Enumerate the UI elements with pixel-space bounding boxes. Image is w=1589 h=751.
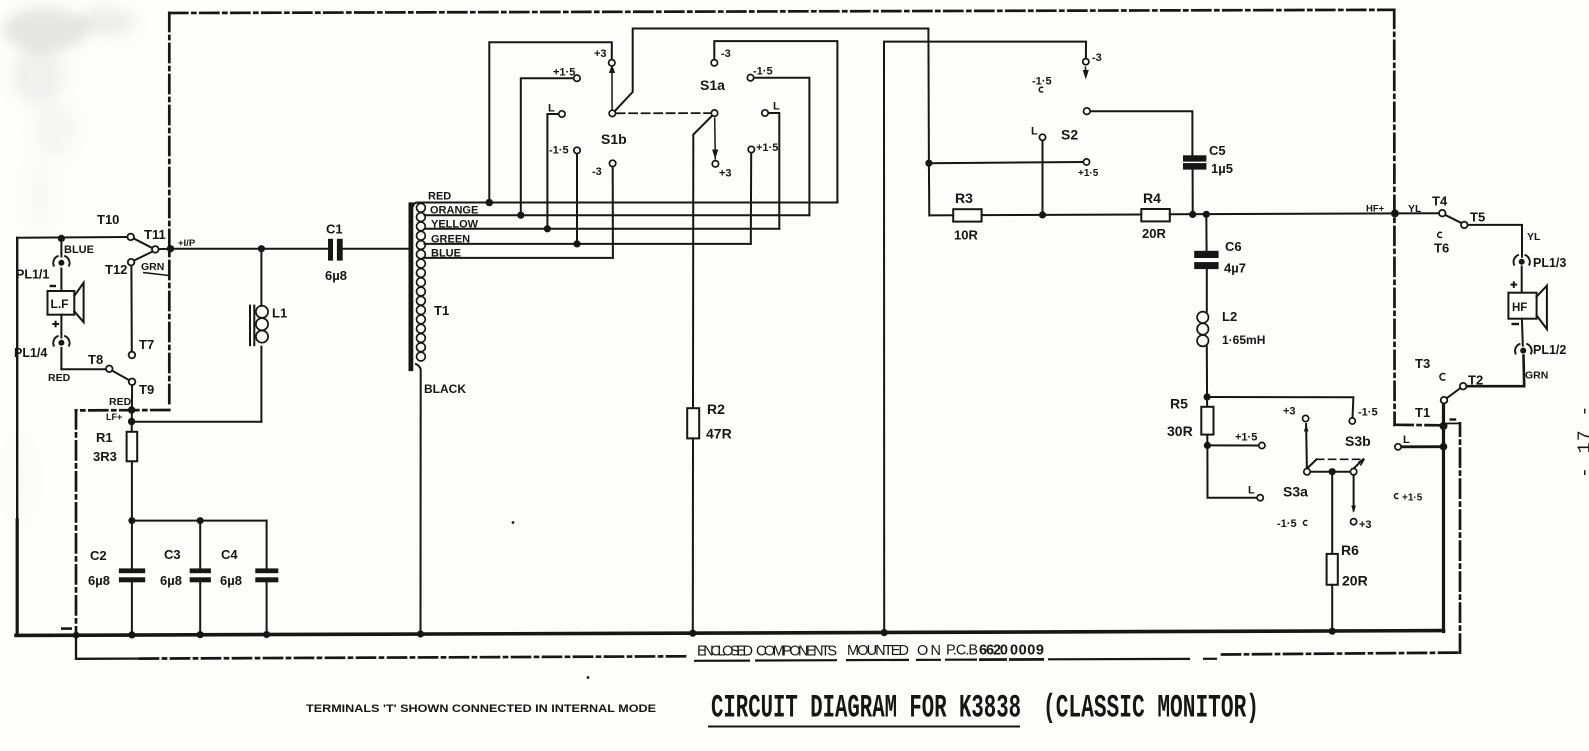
svg-text:+3: +3	[719, 168, 732, 180]
svg-text:30R: 30R	[1167, 423, 1193, 439]
svg-text:T7: T7	[139, 337, 154, 352]
svg-text:3R3: 3R3	[93, 449, 117, 464]
svg-text:-3: -3	[592, 166, 602, 178]
svg-text:T5: T5	[1470, 210, 1485, 225]
svg-text:YL: YL	[1527, 231, 1541, 243]
svg-text:YL: YL	[1408, 203, 1422, 215]
svg-text:47R: 47R	[706, 426, 732, 442]
svg-text:6µ8: 6µ8	[325, 268, 347, 283]
svg-text:+3: +3	[1283, 406, 1296, 418]
svg-text:HF: HF	[1512, 302, 1527, 314]
svg-text:COMPONENTS: COMPONENTS	[756, 643, 837, 659]
svg-text:C5: C5	[1209, 143, 1226, 158]
svg-text:T1: T1	[1415, 405, 1430, 420]
svg-text:GRN: GRN	[141, 261, 164, 273]
svg-text:6620: 6620	[979, 643, 1008, 659]
svg-text:T9: T9	[139, 382, 154, 397]
svg-text:BLUE: BLUE	[64, 244, 94, 256]
svg-text:S3b: S3b	[1345, 433, 1371, 449]
svg-text:S2: S2	[1061, 127, 1078, 143]
svg-text:L: L	[548, 103, 555, 115]
svg-text:HF+: HF+	[1366, 204, 1385, 215]
svg-text:P.C.B: P.C.B	[946, 643, 978, 659]
svg-text:T11: T11	[144, 227, 166, 242]
svg-text:PL1/1: PL1/1	[16, 268, 49, 282]
svg-text:RED: RED	[48, 372, 71, 384]
svg-text:T2: T2	[1468, 373, 1483, 388]
svg-text:C6: C6	[1225, 239, 1242, 254]
svg-text:R5: R5	[1170, 396, 1188, 412]
svg-text:6µ8: 6µ8	[220, 573, 242, 588]
svg-text:MOUNTED: MOUNTED	[847, 643, 909, 659]
svg-text:(CLASSIC MONITOR): (CLASSIC MONITOR)	[1043, 690, 1259, 727]
svg-text:+1·5: +1·5	[756, 142, 778, 154]
svg-text:S3a: S3a	[1283, 484, 1308, 500]
svg-text:RED: RED	[428, 191, 451, 203]
svg-text:T6: T6	[1434, 241, 1449, 256]
svg-text:S1a: S1a	[700, 77, 725, 93]
svg-text:+3: +3	[594, 48, 607, 60]
svg-text:PL1/3: PL1/3	[1533, 256, 1566, 270]
svg-text:L: L	[773, 101, 780, 113]
svg-text:6µ8: 6µ8	[160, 573, 182, 588]
svg-text:ORANGE: ORANGE	[430, 205, 478, 217]
svg-text:20R: 20R	[1142, 226, 1166, 241]
svg-text:T3: T3	[1415, 356, 1430, 371]
svg-text:LF+: LF+	[106, 412, 122, 422]
svg-text:S1b: S1b	[601, 131, 627, 147]
svg-text:ENCLOSED: ENCLOSED	[697, 644, 753, 660]
svg-text:L1: L1	[272, 306, 287, 321]
svg-text:-3: -3	[1092, 52, 1102, 64]
svg-text:L2: L2	[1222, 309, 1237, 324]
svg-text:BLACK: BLACK	[424, 382, 466, 396]
svg-text:-1·5: -1·5	[1277, 518, 1297, 530]
svg-text:T10: T10	[97, 212, 119, 227]
svg-text:0009: 0009	[1010, 643, 1044, 659]
svg-text:+1·5: +1·5	[1402, 493, 1423, 504]
svg-text:L: L	[1031, 126, 1038, 138]
svg-text:+1·5: +1·5	[1235, 432, 1257, 444]
svg-text:+1·5: +1·5	[1078, 168, 1099, 179]
svg-text:YELLOW: YELLOW	[431, 218, 479, 230]
svg-text:-1·5: -1·5	[753, 66, 773, 78]
svg-text:T4: T4	[1432, 194, 1448, 209]
svg-text:R3: R3	[955, 190, 973, 206]
svg-text:GREEN: GREEN	[431, 234, 470, 246]
svg-text:PL1/2: PL1/2	[1533, 343, 1566, 357]
svg-text:+1·5: +1·5	[553, 67, 575, 79]
svg-text:T12: T12	[105, 262, 127, 277]
svg-text:- 17 -: - 17 -	[1576, 404, 1589, 478]
svg-text:RED: RED	[109, 396, 132, 408]
svg-text:4µ7: 4µ7	[1224, 261, 1246, 276]
svg-text:C2: C2	[90, 548, 107, 563]
svg-text:-1·5: -1·5	[1358, 407, 1378, 419]
svg-text:6µ8: 6µ8	[88, 573, 110, 588]
svg-text:1µ5: 1µ5	[1211, 161, 1233, 176]
svg-text:C3: C3	[164, 547, 181, 562]
svg-text:R2: R2	[707, 401, 725, 417]
svg-text:L.F: L.F	[51, 297, 69, 311]
svg-text:T1: T1	[434, 303, 449, 318]
svg-text:20R: 20R	[1342, 573, 1368, 589]
svg-text:+3: +3	[1359, 519, 1372, 531]
svg-text:-1·5: -1·5	[1032, 76, 1052, 88]
svg-text:CIRCUIT DIAGRAM FOR K3838: CIRCUIT DIAGRAM FOR K3838	[711, 690, 1021, 727]
svg-text:BLUE: BLUE	[431, 248, 461, 260]
svg-text:R4: R4	[1143, 190, 1161, 206]
svg-text:T8: T8	[88, 352, 103, 367]
svg-text:+I/P: +I/P	[178, 238, 196, 249]
svg-text:-3: -3	[721, 48, 731, 60]
svg-text:L: L	[1403, 434, 1410, 446]
svg-text:-1·5: -1·5	[549, 145, 569, 157]
svg-text:PL1/4: PL1/4	[14, 346, 47, 360]
svg-text:1·65mH: 1·65mH	[1222, 333, 1265, 347]
svg-text:10R: 10R	[954, 228, 978, 243]
svg-text:TERMINALS 'T' SHOWN CONNECTED: TERMINALS 'T' SHOWN CONNECTED IN INTERNA…	[306, 703, 656, 715]
svg-text:R6: R6	[1341, 542, 1359, 558]
svg-text:C4: C4	[221, 547, 238, 562]
svg-text:C1: C1	[326, 222, 343, 237]
svg-text:R1: R1	[96, 430, 113, 445]
svg-text:GRN: GRN	[1525, 370, 1548, 382]
svg-text:L: L	[1248, 485, 1255, 497]
